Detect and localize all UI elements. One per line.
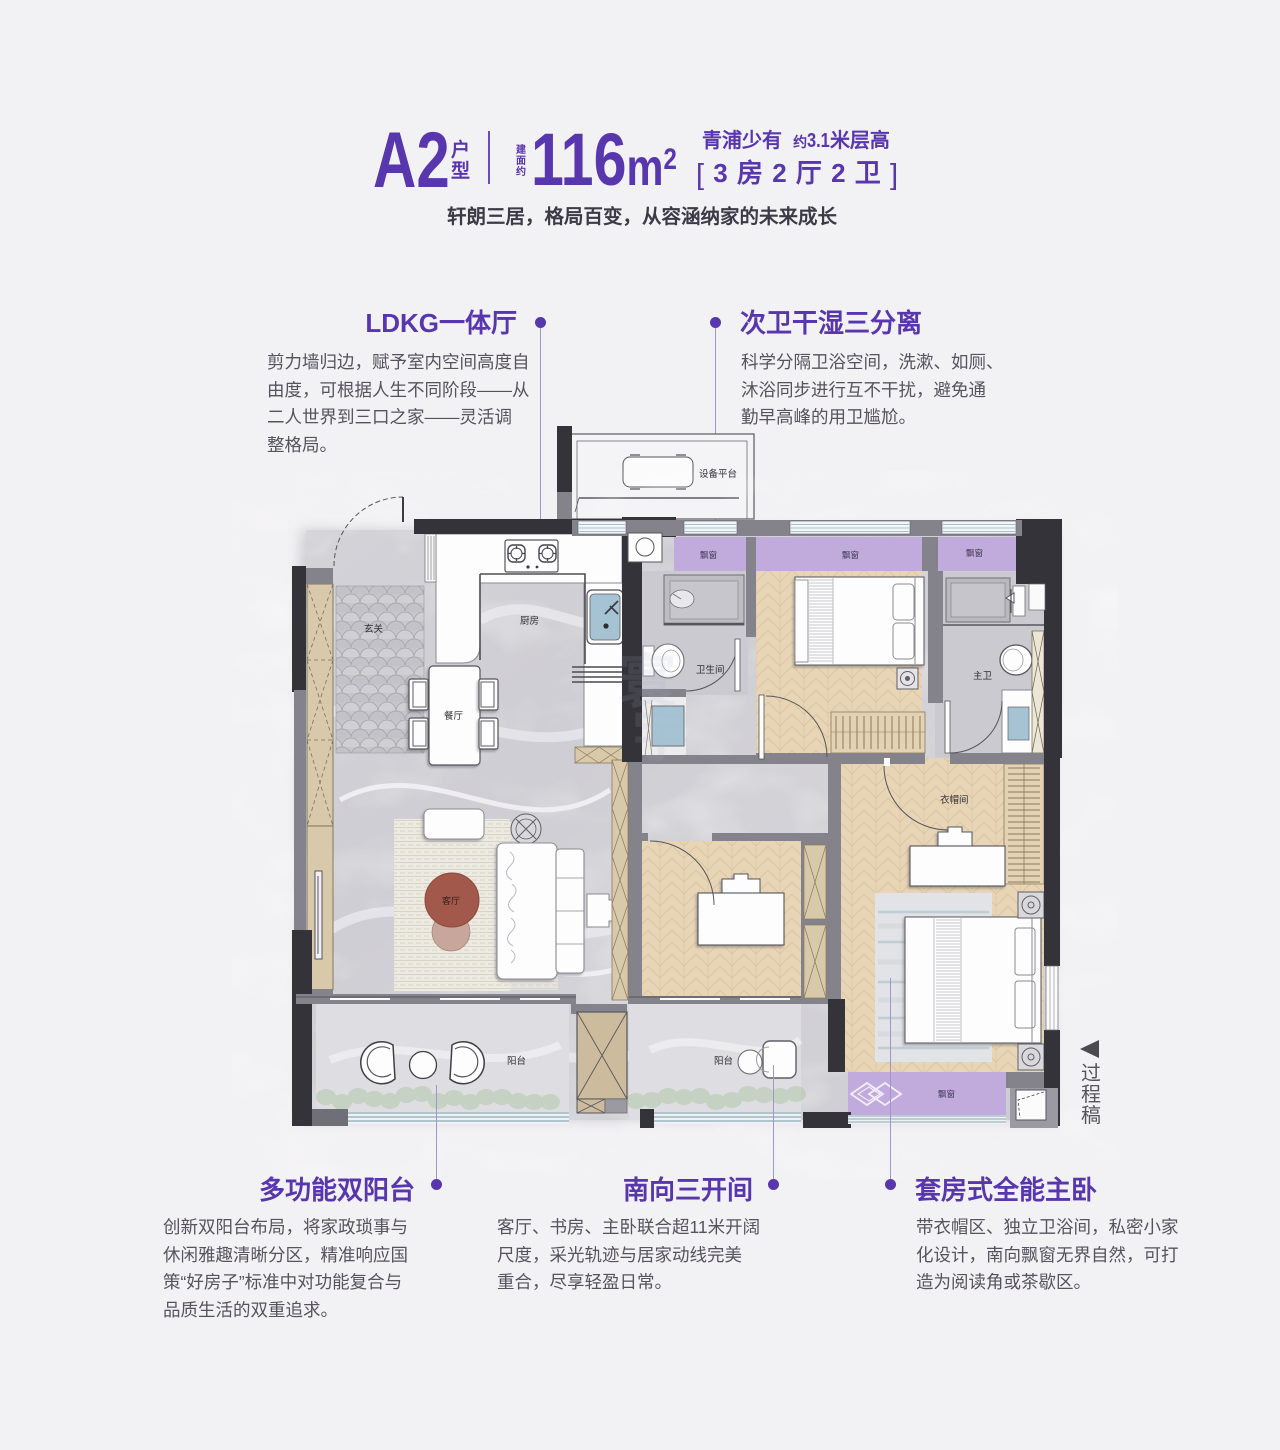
svg-text:衣帽间: 衣帽间 [940,794,969,806]
svg-text:主卫: 主卫 [973,670,993,682]
svg-text:飘窗: 飘窗 [966,548,983,558]
svg-text:飘窗: 飘窗 [842,550,859,560]
svg-text:餐厅: 餐厅 [444,710,464,722]
svg-text:玄关: 玄关 [364,623,384,635]
svg-text:阳台: 阳台 [507,1055,526,1067]
svg-text:设备平台: 设备平台 [699,468,737,480]
svg-text:飘窗: 飘窗 [700,550,717,560]
svg-text:厨房: 厨房 [520,615,539,627]
svg-text:卫生间: 卫生间 [696,664,725,676]
svg-text:宇: 宇 [632,704,690,769]
svg-text:飘窗: 飘窗 [938,1089,955,1099]
svg-text:客厅: 客厅 [442,895,460,906]
svg-text:阳台: 阳台 [714,1055,733,1067]
